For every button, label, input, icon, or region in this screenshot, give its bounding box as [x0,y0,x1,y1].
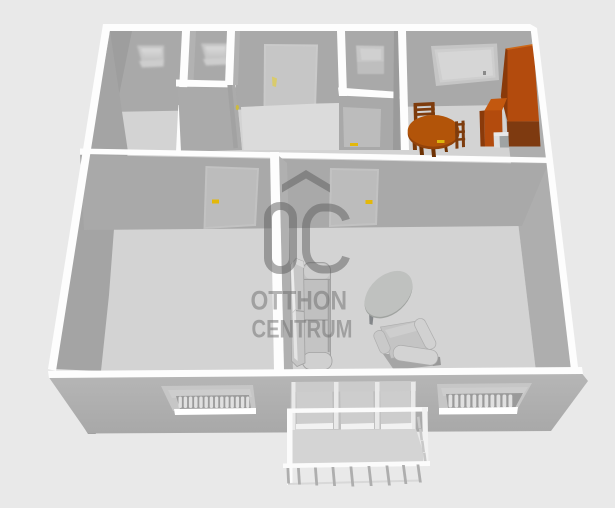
svg-text:CENTRUM: CENTRUM [252,316,353,344]
svg-text:OTTHON: OTTHON [251,286,348,316]
